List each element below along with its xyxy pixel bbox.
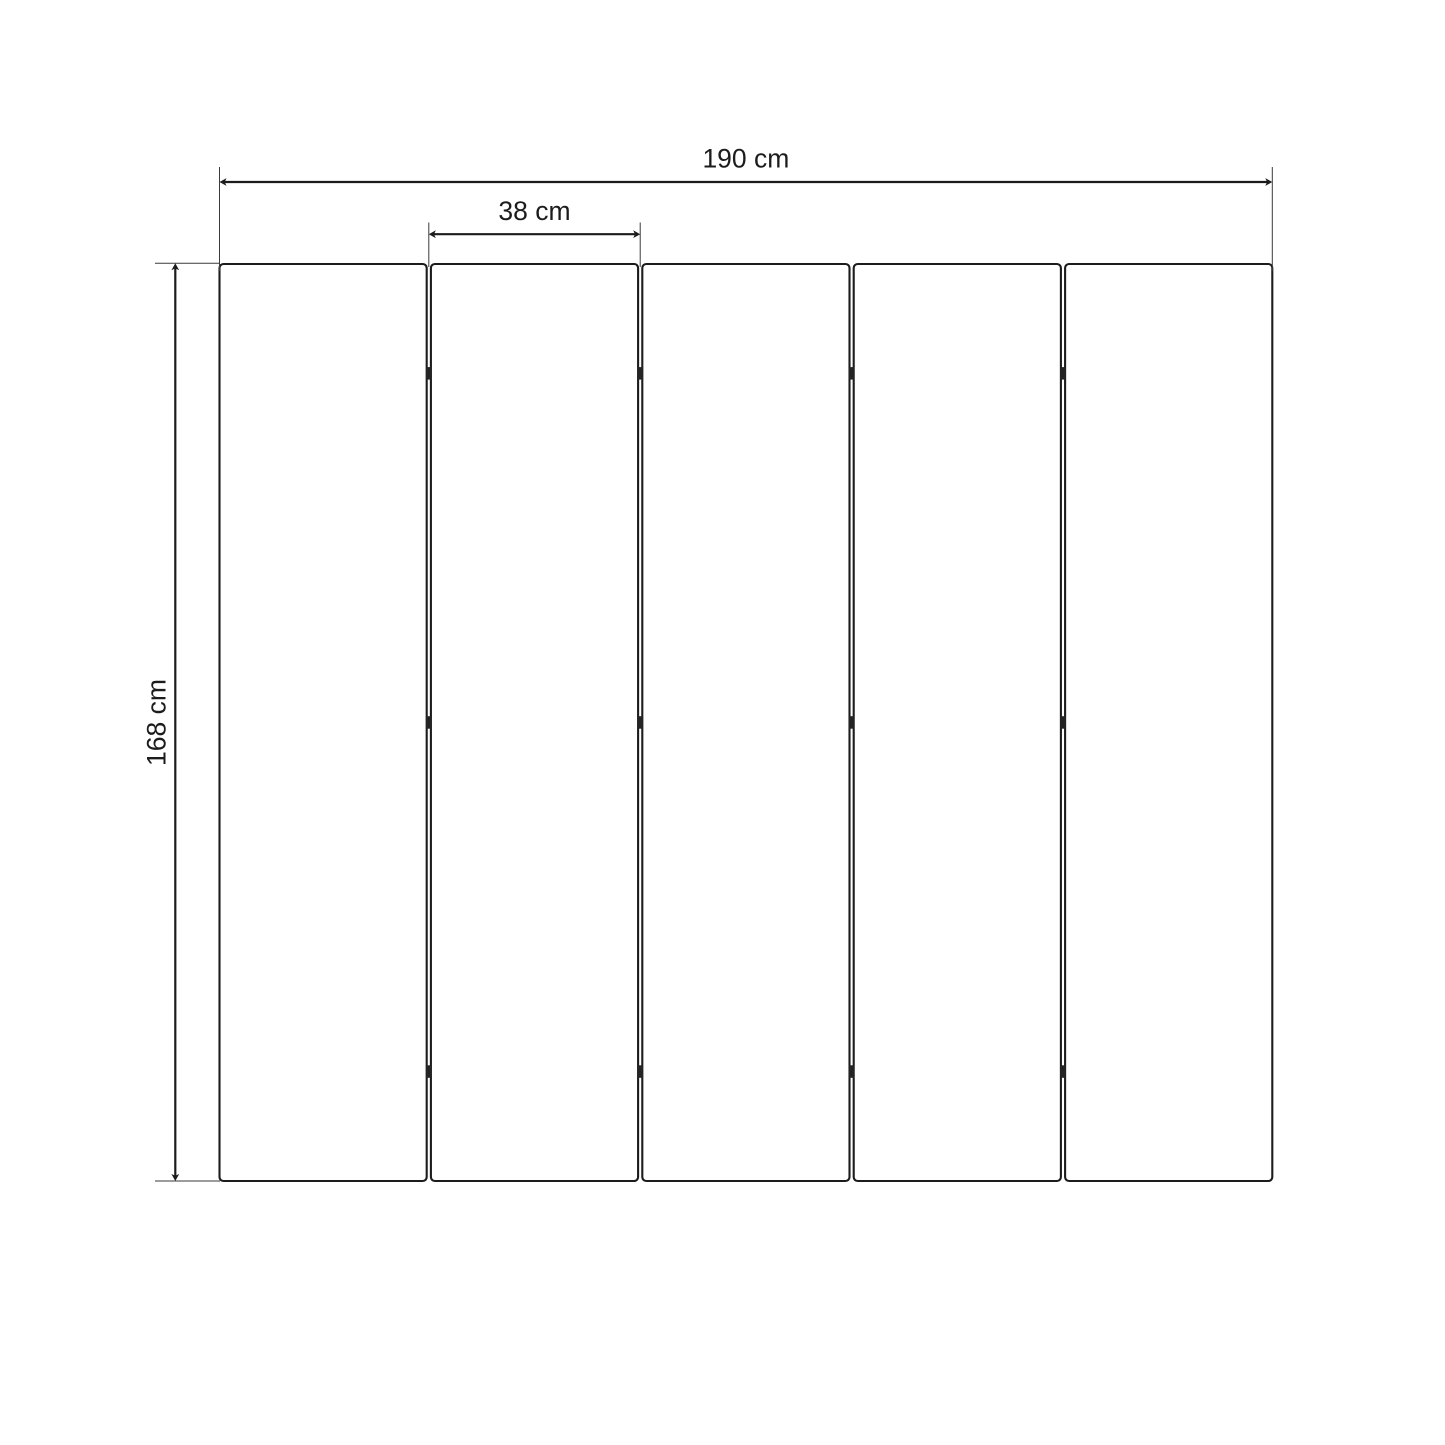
svg-text:38 cm: 38 cm <box>498 196 570 226</box>
svg-text:190 cm: 190 cm <box>702 144 789 174</box>
svg-text:168 cm: 168 cm <box>142 679 172 766</box>
